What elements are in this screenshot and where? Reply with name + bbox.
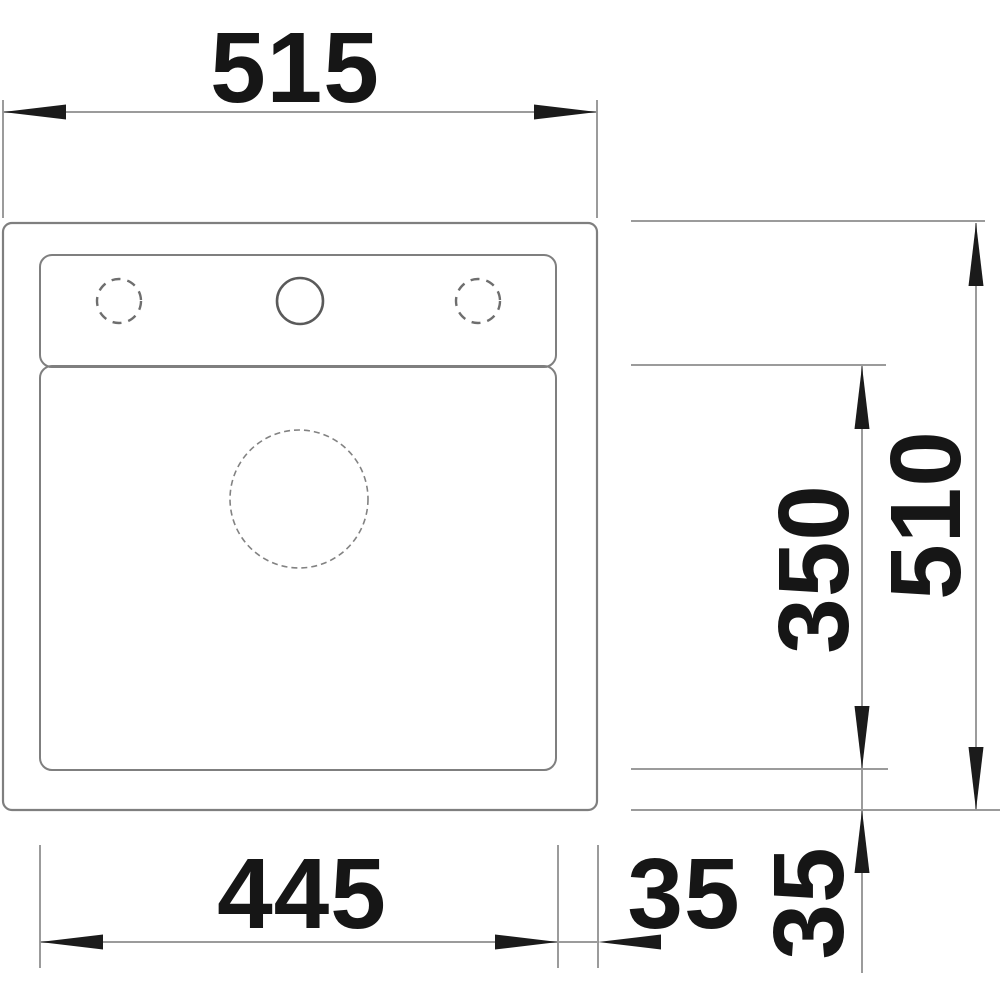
drain-circle-icon — [230, 430, 368, 568]
dimension-label-offset-bottom: 35 — [627, 838, 740, 950]
dimension-overall-width: 515 — [3, 12, 597, 218]
dimension-label-bowl-depth: 350 — [758, 484, 870, 654]
arrowhead-left — [3, 105, 66, 120]
arrowhead-right — [534, 105, 597, 120]
dimension-label-bowl-width: 445 — [217, 838, 387, 950]
faucet-hole-center-icon — [277, 278, 323, 324]
arrowhead-right — [495, 935, 558, 950]
faucet-ledge-outline — [40, 255, 556, 367]
arrowhead-up — [969, 223, 984, 286]
dimension-label-overall-width: 515 — [210, 12, 380, 124]
sink-top-view — [3, 223, 597, 810]
faucet-hole-right-optional-icon — [456, 279, 500, 323]
arrowhead-down — [969, 747, 984, 810]
dimension-label-offset-right: 35 — [753, 846, 865, 959]
drawing-canvas: 515 510 350 35 445 35 — [0, 0, 1000, 1000]
dimension-offset-right: 35 — [753, 810, 870, 960]
dimension-bowl-width: 445 — [40, 838, 598, 968]
dimension-label-overall-depth: 510 — [870, 430, 982, 600]
dimension-offset-bottom: 35 — [598, 838, 741, 968]
arrowhead-left — [40, 935, 103, 950]
arrowhead-up — [855, 366, 870, 429]
faucet-hole-left-optional-icon — [97, 279, 141, 323]
sink-outer-rim-outline — [3, 223, 597, 810]
bowl-outline — [40, 366, 556, 770]
arrowhead-down — [855, 706, 870, 769]
sink-dimension-drawing: 515 510 350 35 445 35 — [0, 0, 1000, 1000]
